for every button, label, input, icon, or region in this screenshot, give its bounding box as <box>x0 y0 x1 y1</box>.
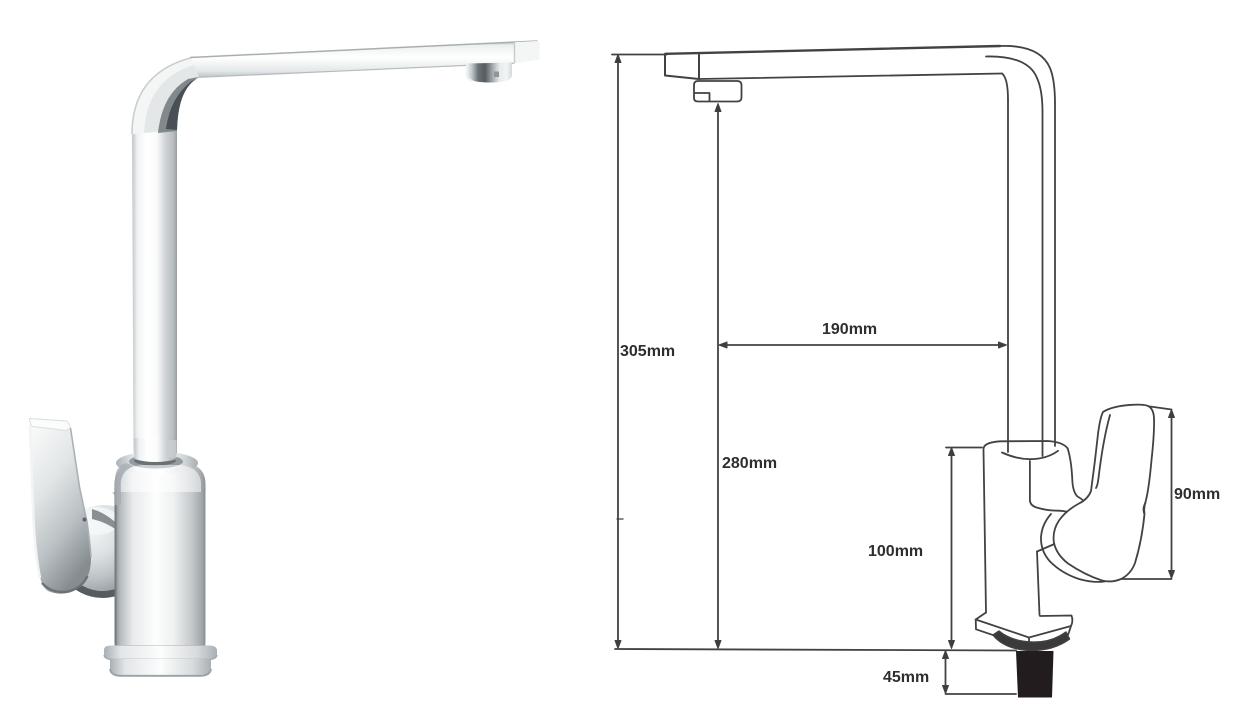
svg-text:280mm: 280mm <box>722 455 777 472</box>
svg-text:100mm: 100mm <box>868 543 923 560</box>
svg-text:45mm: 45mm <box>883 669 929 686</box>
svg-text:190mm: 190mm <box>822 321 877 338</box>
svg-text:305mm: 305mm <box>620 343 675 360</box>
svg-text:90mm: 90mm <box>1174 486 1220 503</box>
